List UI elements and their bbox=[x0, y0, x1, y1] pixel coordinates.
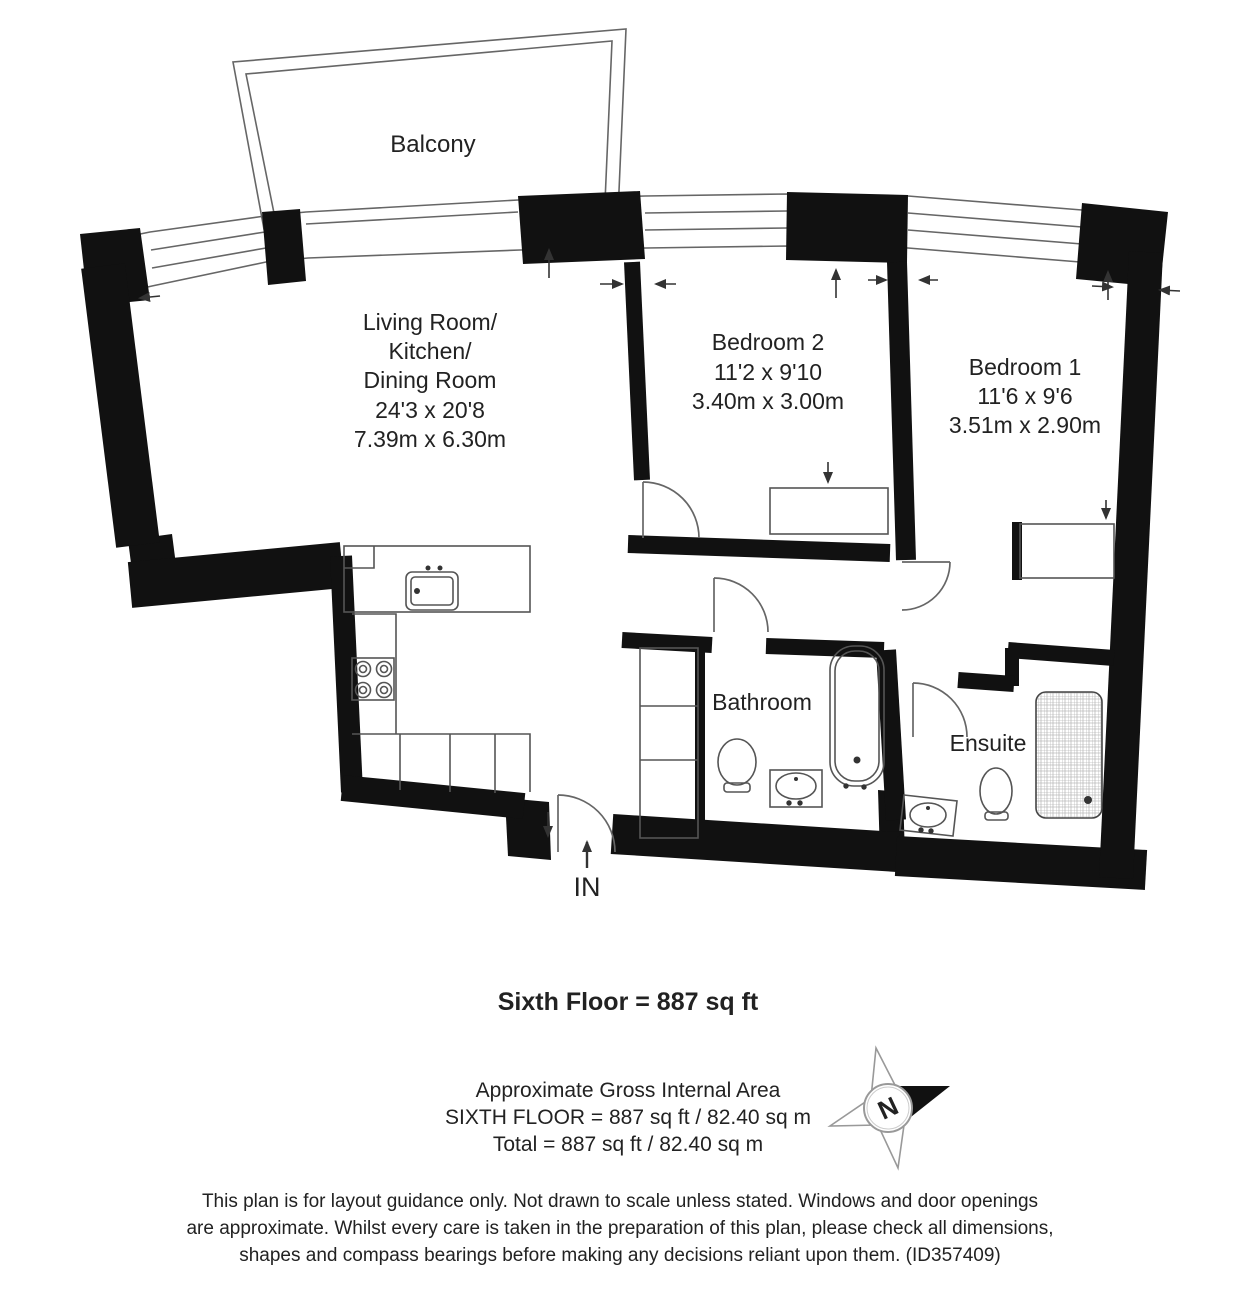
living-room-label-1: Living Room/ bbox=[363, 309, 498, 335]
living-room-label-2: Kitchen/ bbox=[388, 338, 472, 364]
wardrobes bbox=[770, 488, 1114, 578]
disclaimer-line-1: This plan is for layout guidance only. N… bbox=[202, 1191, 1038, 1212]
compass: N bbox=[830, 1048, 950, 1168]
bedroom2-dims-metric: 3.40m x 3.00m bbox=[692, 388, 844, 414]
bedroom1-dims-metric: 3.51m x 2.90m bbox=[949, 412, 1101, 438]
opening-arrow bbox=[1160, 290, 1180, 291]
living-room-dims-imperial: 24'3 x 20'8 bbox=[375, 397, 485, 423]
bedroom2-door bbox=[643, 482, 699, 538]
wall-pillar bbox=[262, 209, 306, 285]
entrance-label: IN bbox=[574, 872, 601, 902]
bathroom-toilet bbox=[718, 739, 756, 792]
ensuite-sink bbox=[900, 795, 957, 836]
kitchen-island bbox=[344, 546, 530, 612]
exterior-wall-runs bbox=[103, 252, 1146, 878]
wall-pillar bbox=[518, 191, 645, 264]
shower bbox=[1036, 692, 1102, 818]
disclaimer-line-3: shapes and compass bearings before makin… bbox=[239, 1245, 1001, 1266]
living-room-dims-metric: 7.39m x 6.30m bbox=[354, 426, 506, 452]
opening-arrow bbox=[1092, 286, 1112, 287]
ensuite-fixtures bbox=[900, 692, 1102, 836]
floorplan-drawing: Balcony Living Room/ Kitchen/ Dining Roo… bbox=[0, 0, 1242, 1316]
ensuite-toilet bbox=[980, 768, 1012, 820]
footer: Sixth Floor = 887 sq ft Approximate Gros… bbox=[186, 988, 1053, 1266]
bathroom-sink bbox=[770, 770, 822, 807]
bathroom-door bbox=[714, 578, 768, 632]
floor-title: Sixth Floor = 887 sq ft bbox=[498, 988, 759, 1016]
area-total: Total = 887 sq ft / 82.40 sq m bbox=[493, 1133, 763, 1156]
bedroom1-label: Bedroom 1 bbox=[969, 354, 1082, 380]
exterior-walls bbox=[80, 191, 1168, 860]
ensuite-door bbox=[913, 683, 967, 737]
bedroom1-door bbox=[902, 562, 950, 610]
area-heading: Approximate Gross Internal Area bbox=[476, 1079, 781, 1102]
bathroom-label: Bathroom bbox=[712, 689, 812, 715]
bedroom2-wardrobe bbox=[770, 488, 888, 534]
kitchen-fixtures bbox=[344, 546, 530, 793]
wall-pillar bbox=[786, 192, 908, 263]
living-room-label-3: Dining Room bbox=[364, 367, 497, 393]
bathroom-fixtures bbox=[640, 646, 884, 838]
storage-unit bbox=[640, 648, 698, 838]
ensuite-label: Ensuite bbox=[950, 730, 1027, 756]
disclaimer-line-2: are approximate. Whilst every care is ta… bbox=[186, 1218, 1053, 1239]
bedroom1-dims-imperial: 11'6 x 9'6 bbox=[977, 383, 1072, 409]
floorplan-page: Balcony Living Room/ Kitchen/ Dining Roo… bbox=[0, 0, 1242, 1316]
bedroom1-wardrobe bbox=[1020, 524, 1114, 578]
kitchen-sink bbox=[406, 566, 458, 611]
bathtub bbox=[830, 646, 884, 790]
balcony-label: Balcony bbox=[390, 131, 475, 158]
bedroom2-label: Bedroom 2 bbox=[712, 329, 825, 355]
bedroom2-dims-imperial: 11'2 x 9'10 bbox=[714, 359, 822, 385]
area-sixth-floor: SIXTH FLOOR = 887 sq ft / 82.40 sq m bbox=[445, 1106, 811, 1129]
